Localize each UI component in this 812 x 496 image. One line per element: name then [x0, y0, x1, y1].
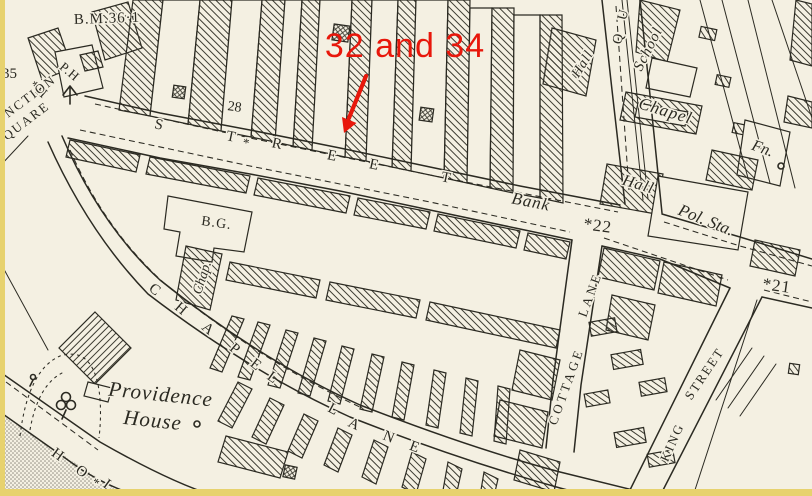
- red-annotation-text: 32 and 34: [325, 27, 485, 65]
- scan-edge-bottom: [0, 489, 812, 496]
- scan-edge-left: [0, 0, 5, 496]
- map-canvas: 32 and 34B.M.36·135P.H*HUNCTIONSQUARE28S…: [0, 0, 812, 496]
- number-28: 28: [227, 99, 243, 116]
- number-22: *22: [582, 214, 613, 237]
- os-map-scan: 32 and 34B.M.36·135P.H*HUNCTIONSQUARE28S…: [0, 0, 812, 496]
- number-21: *21: [761, 274, 792, 297]
- benchmark-value: B.M.36·1: [74, 10, 141, 28]
